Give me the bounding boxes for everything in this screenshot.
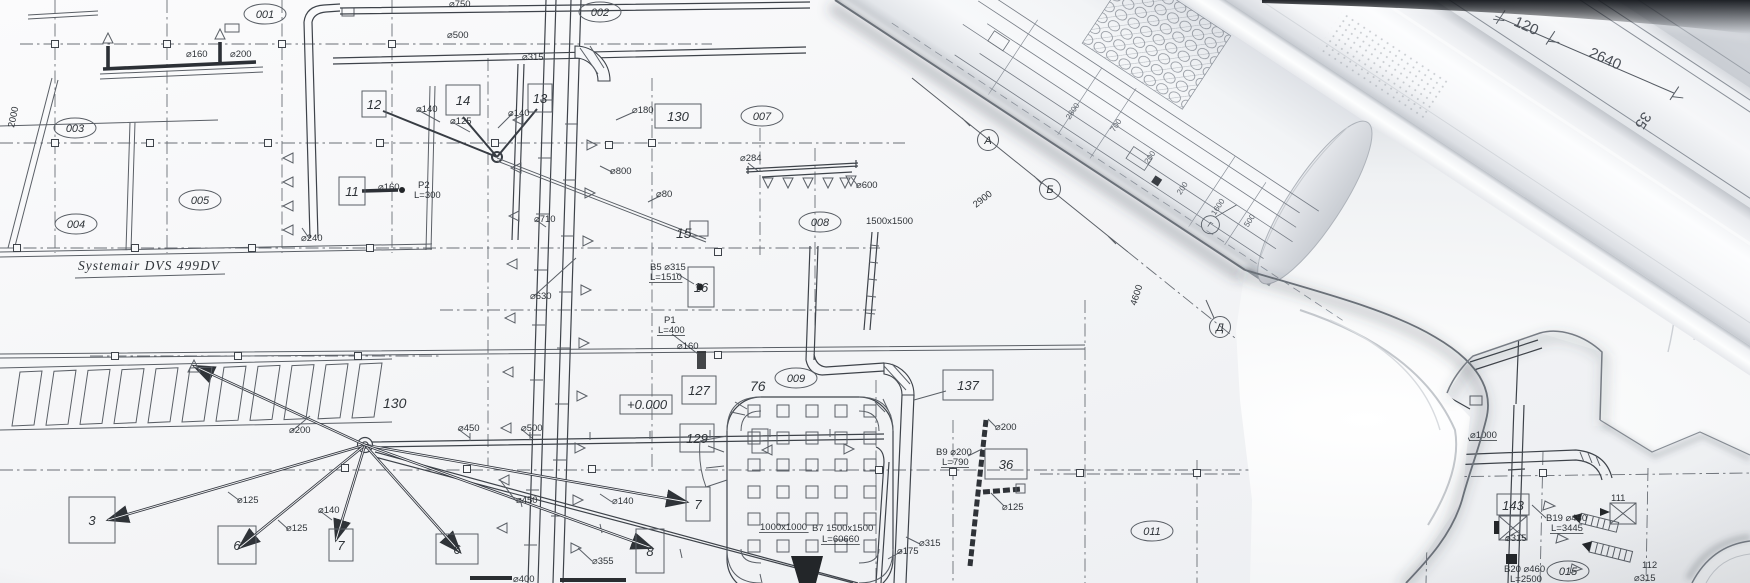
dim-label: ⌀710	[534, 214, 556, 225]
dim-label: ⌀450	[516, 495, 538, 506]
dim-label: ⌀315	[919, 538, 941, 549]
note-label: 1500x1500	[866, 216, 913, 227]
dim-label: ⌀180	[632, 105, 654, 116]
axis-bubble-label: Д	[1214, 322, 1224, 334]
equipment-box-label: 7	[337, 538, 345, 553]
dim-label: ⌀200	[230, 49, 252, 60]
dim-label: ⌀630	[530, 291, 552, 302]
room-tag-label: 002	[591, 7, 609, 19]
note-label: L=300	[414, 190, 441, 201]
dim-label: ⌀140	[318, 505, 340, 516]
equipment-box-label: 36	[999, 457, 1014, 472]
note-label: B7 1500x1500	[812, 523, 873, 534]
equipment-box-label: 14	[456, 93, 470, 108]
corner-dim-label: 112	[1642, 560, 1657, 571]
axis-bubble-label: A	[983, 135, 991, 147]
dim-label: ⌀125	[450, 116, 472, 127]
dim-label: ⌀500	[447, 30, 469, 41]
equipment-tag: 15	[676, 225, 692, 241]
equipment-tag: 130	[383, 395, 407, 411]
dim-label: ⌀160	[186, 49, 208, 60]
room-tag-label: 001	[256, 9, 274, 21]
room-tag-label: 007	[753, 111, 772, 123]
note-label: 1000x1000	[760, 522, 807, 533]
room-tag-label: 008	[811, 217, 830, 229]
dim-label: ⌀200	[289, 425, 311, 436]
room-tag-label: 009	[787, 373, 805, 385]
equipment-box-label: 130	[667, 109, 689, 124]
dim-label: ⌀450	[458, 423, 480, 434]
corner-dim-label: ⌀315	[1505, 533, 1527, 544]
room-tag-label: 011	[1143, 526, 1161, 538]
dim-label: ⌀500	[521, 423, 543, 434]
dim-label: ⌀175	[897, 546, 919, 557]
room-tag-label: 003	[66, 123, 85, 135]
equipment-box-label: 8	[646, 544, 654, 559]
equipment-box-label: 7	[694, 497, 702, 512]
dim-label: ⌀125	[286, 523, 308, 534]
equipment-box-label: 16	[694, 280, 709, 295]
equipment-box-label: 6	[453, 542, 461, 557]
elevation-mark: +0.000	[620, 395, 672, 414]
note-label: L=400	[658, 325, 685, 336]
equipment-box-label: 3	[88, 513, 96, 528]
dim-label: ⌀140	[508, 108, 530, 119]
blueprint-photo: Systemair DVS 499DV +0.000 015 143 00100…	[0, 0, 1750, 583]
corner-dim-label: ⌀315	[1634, 573, 1656, 583]
axis-bubble-label: Б	[1046, 184, 1053, 196]
dim-label: ⌀240	[301, 233, 323, 244]
dim-label: ⌀140	[416, 104, 438, 115]
dim-label: ⌀125	[1002, 502, 1024, 513]
equipment-box-label: 6	[233, 538, 241, 553]
dim-label: ⌀600	[856, 180, 878, 191]
note-label: L=1510	[650, 272, 682, 283]
svg-text:015: 015	[1559, 566, 1578, 578]
equipment-box-label: 13	[533, 91, 548, 106]
equipment-box-label: 129	[686, 431, 708, 446]
plan-title: Systemair DVS 499DV	[78, 258, 221, 273]
corner-dim-label: 111	[1611, 493, 1625, 504]
room-tag-label: 004	[67, 219, 85, 231]
svg-text:+0.000: +0.000	[627, 397, 668, 412]
dim-label: ⌀284	[740, 153, 762, 164]
dim-label: ⌀800	[610, 166, 632, 177]
dim-label: ⌀160	[677, 341, 699, 352]
corner-dim-label: L=3445	[1551, 523, 1583, 534]
equipment-box-label: 11	[345, 184, 359, 199]
equipment-box-label: 137	[957, 378, 979, 393]
corner-dim-label: ⌀1000	[1470, 430, 1497, 441]
dim-label: ⌀200	[995, 422, 1017, 433]
dim-label: ⌀315	[522, 52, 544, 63]
note-label: L=60660	[822, 534, 859, 545]
room-tag-label: 005	[191, 195, 210, 207]
dim-label: ⌀400	[513, 574, 535, 583]
equipment-box-label: 127	[688, 383, 710, 398]
equipment-box-label: 12	[367, 97, 382, 112]
equipment-tag: 76	[750, 378, 766, 394]
dim-label: ⌀140	[612, 496, 634, 507]
dim-label: ⌀750	[449, 0, 471, 10]
dim-label: ⌀125	[237, 495, 259, 506]
svg-text:143: 143	[1502, 498, 1524, 513]
dim-label: ⌀80	[656, 189, 672, 200]
corner-dim-label: L=2500	[1510, 574, 1542, 583]
dim-label: ⌀355	[592, 556, 614, 567]
note-label: L=790	[942, 457, 969, 468]
dim-label: ⌀160	[378, 182, 400, 193]
